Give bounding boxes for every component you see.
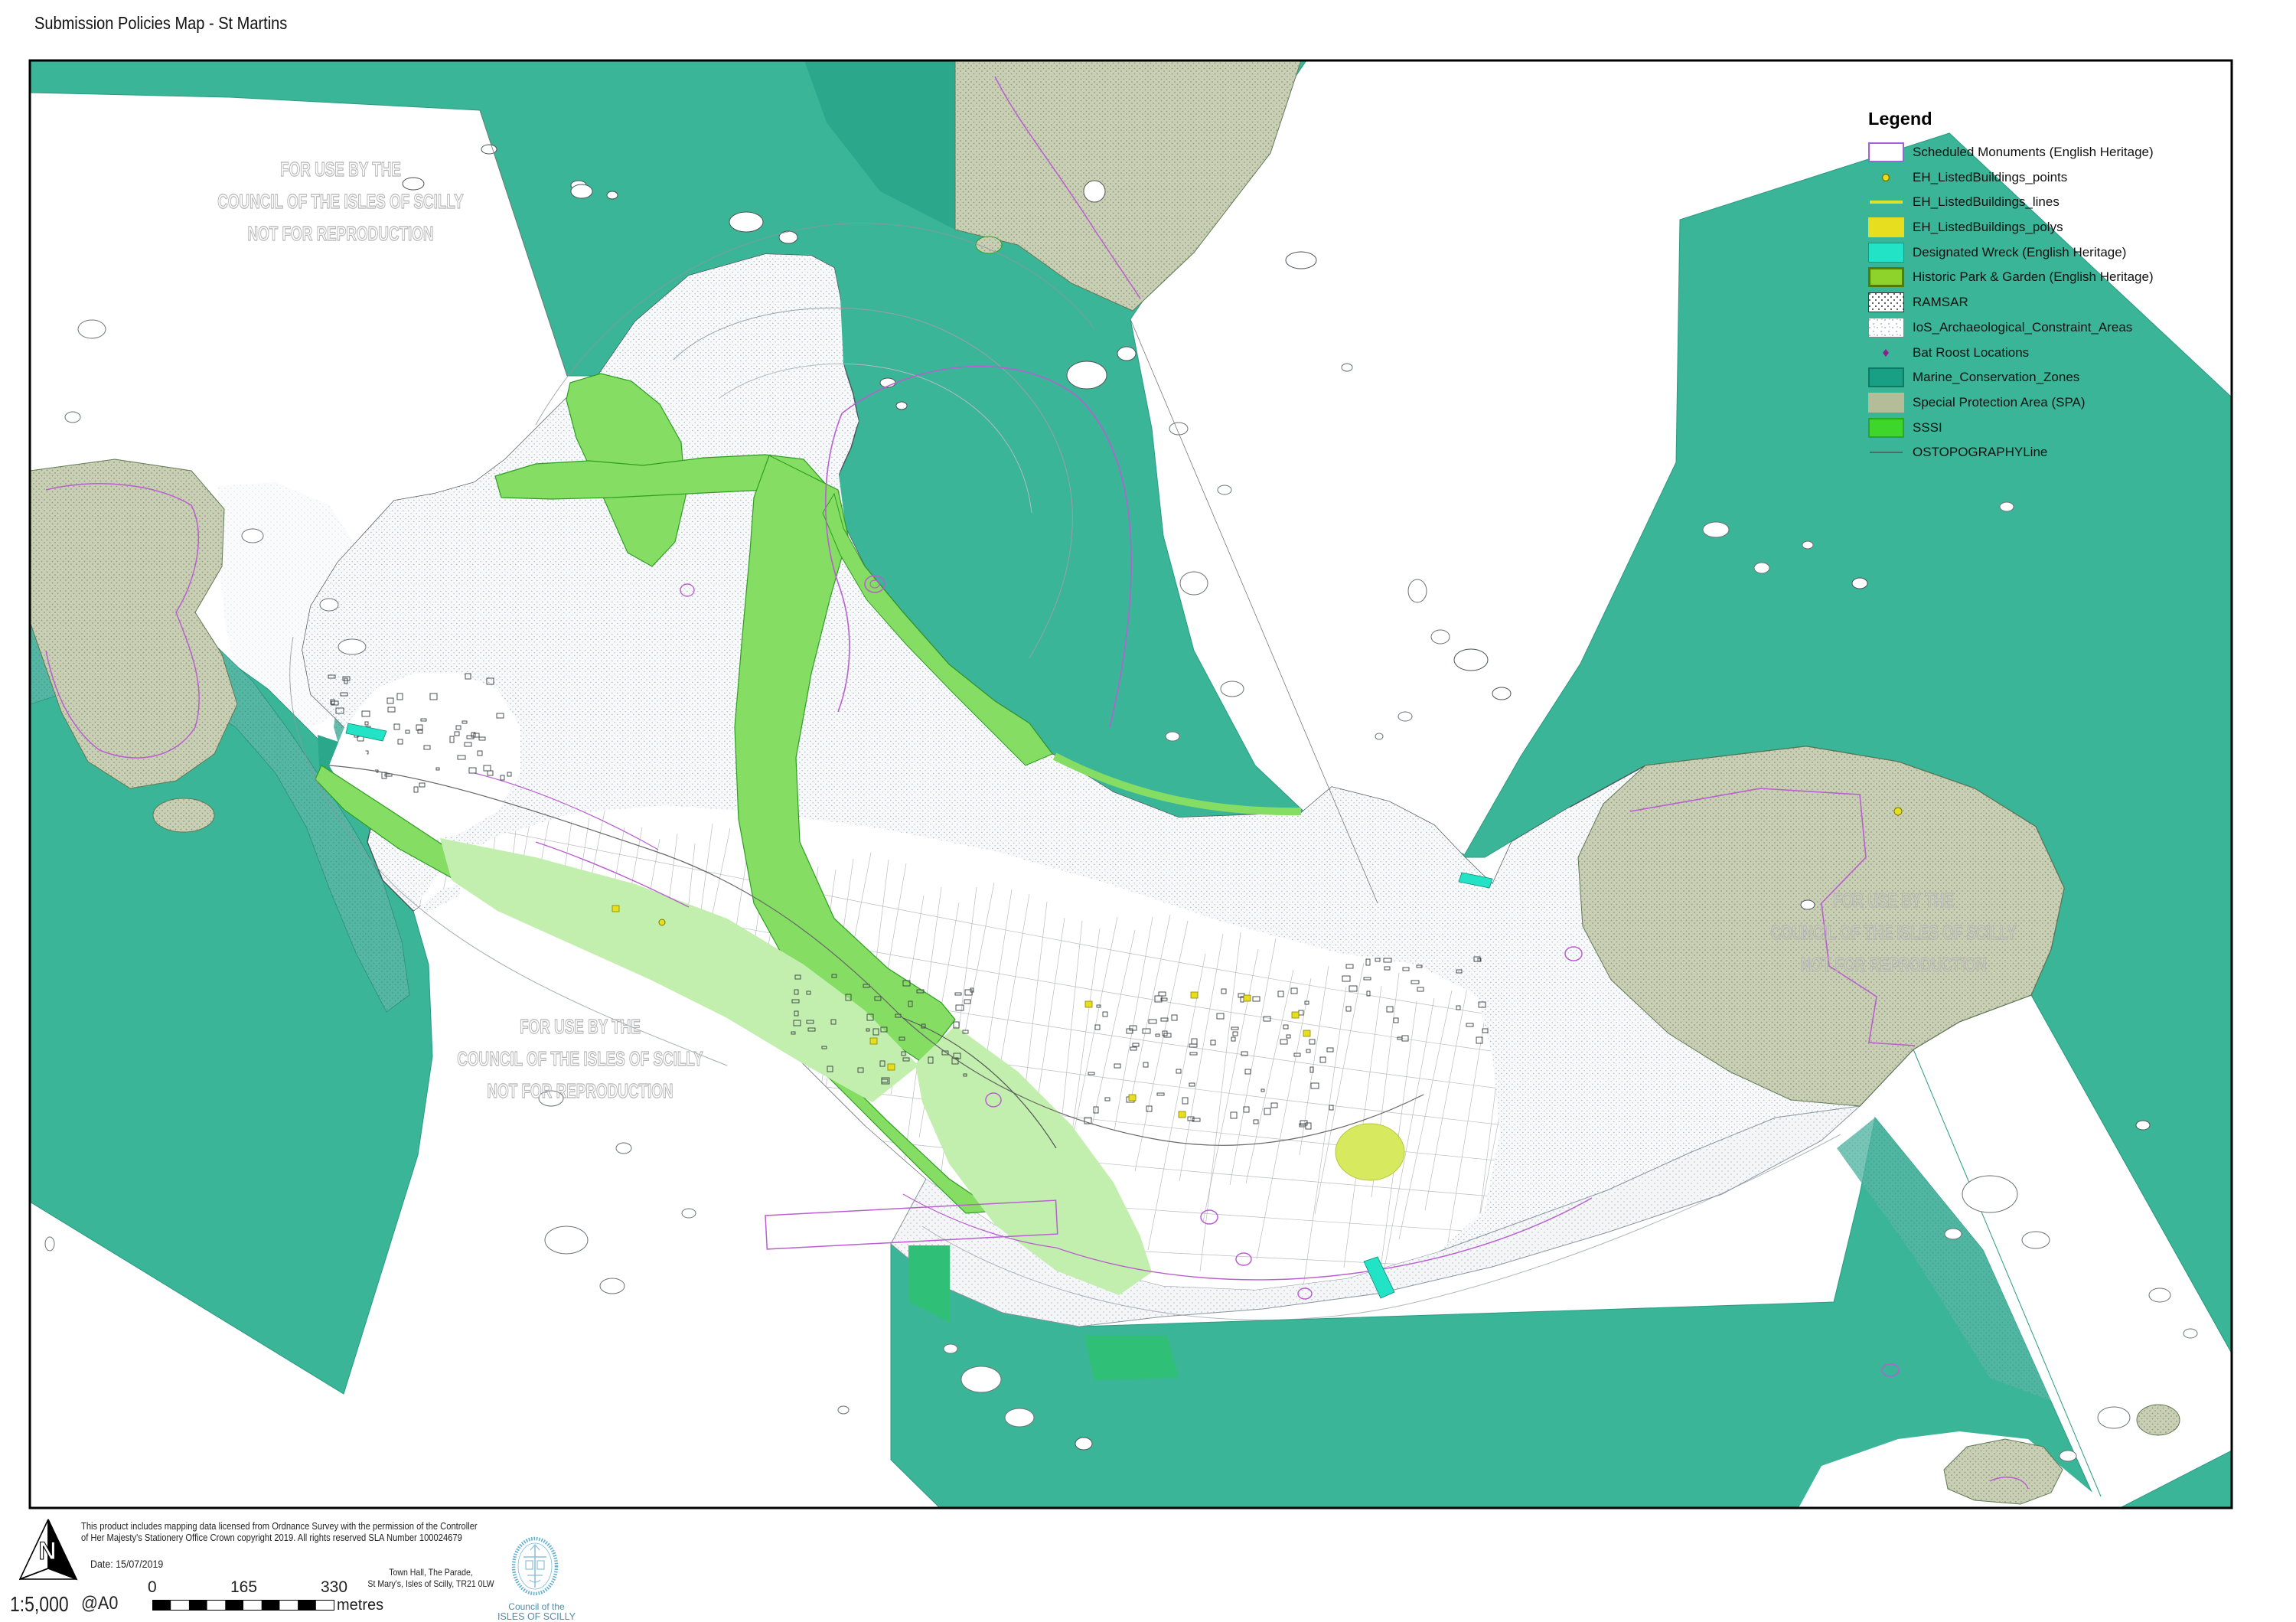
svg-text:N: N [38,1537,56,1565]
